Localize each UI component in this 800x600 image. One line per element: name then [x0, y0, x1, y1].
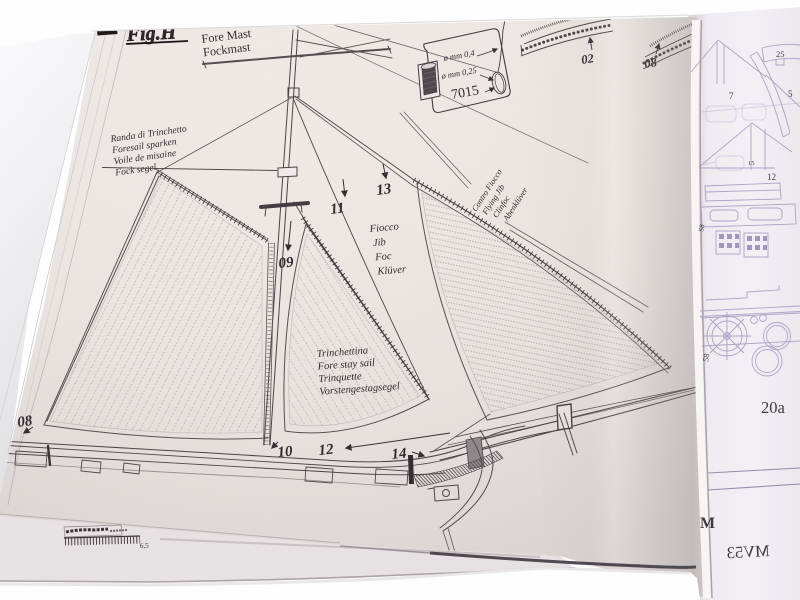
svg-text:5: 5: [788, 89, 793, 99]
svg-text:58: 58: [701, 353, 711, 362]
svg-text:6,5: 6,5: [140, 542, 150, 550]
svg-text:20a: 20a: [761, 398, 786, 417]
svg-text:M: M: [700, 515, 715, 532]
svg-text:MV53: MV53: [726, 541, 770, 562]
svg-text:25: 25: [776, 49, 785, 59]
svg-text:7: 7: [729, 91, 734, 101]
svg-text:15: 15: [748, 160, 755, 167]
svg-text:12: 12: [767, 172, 776, 182]
